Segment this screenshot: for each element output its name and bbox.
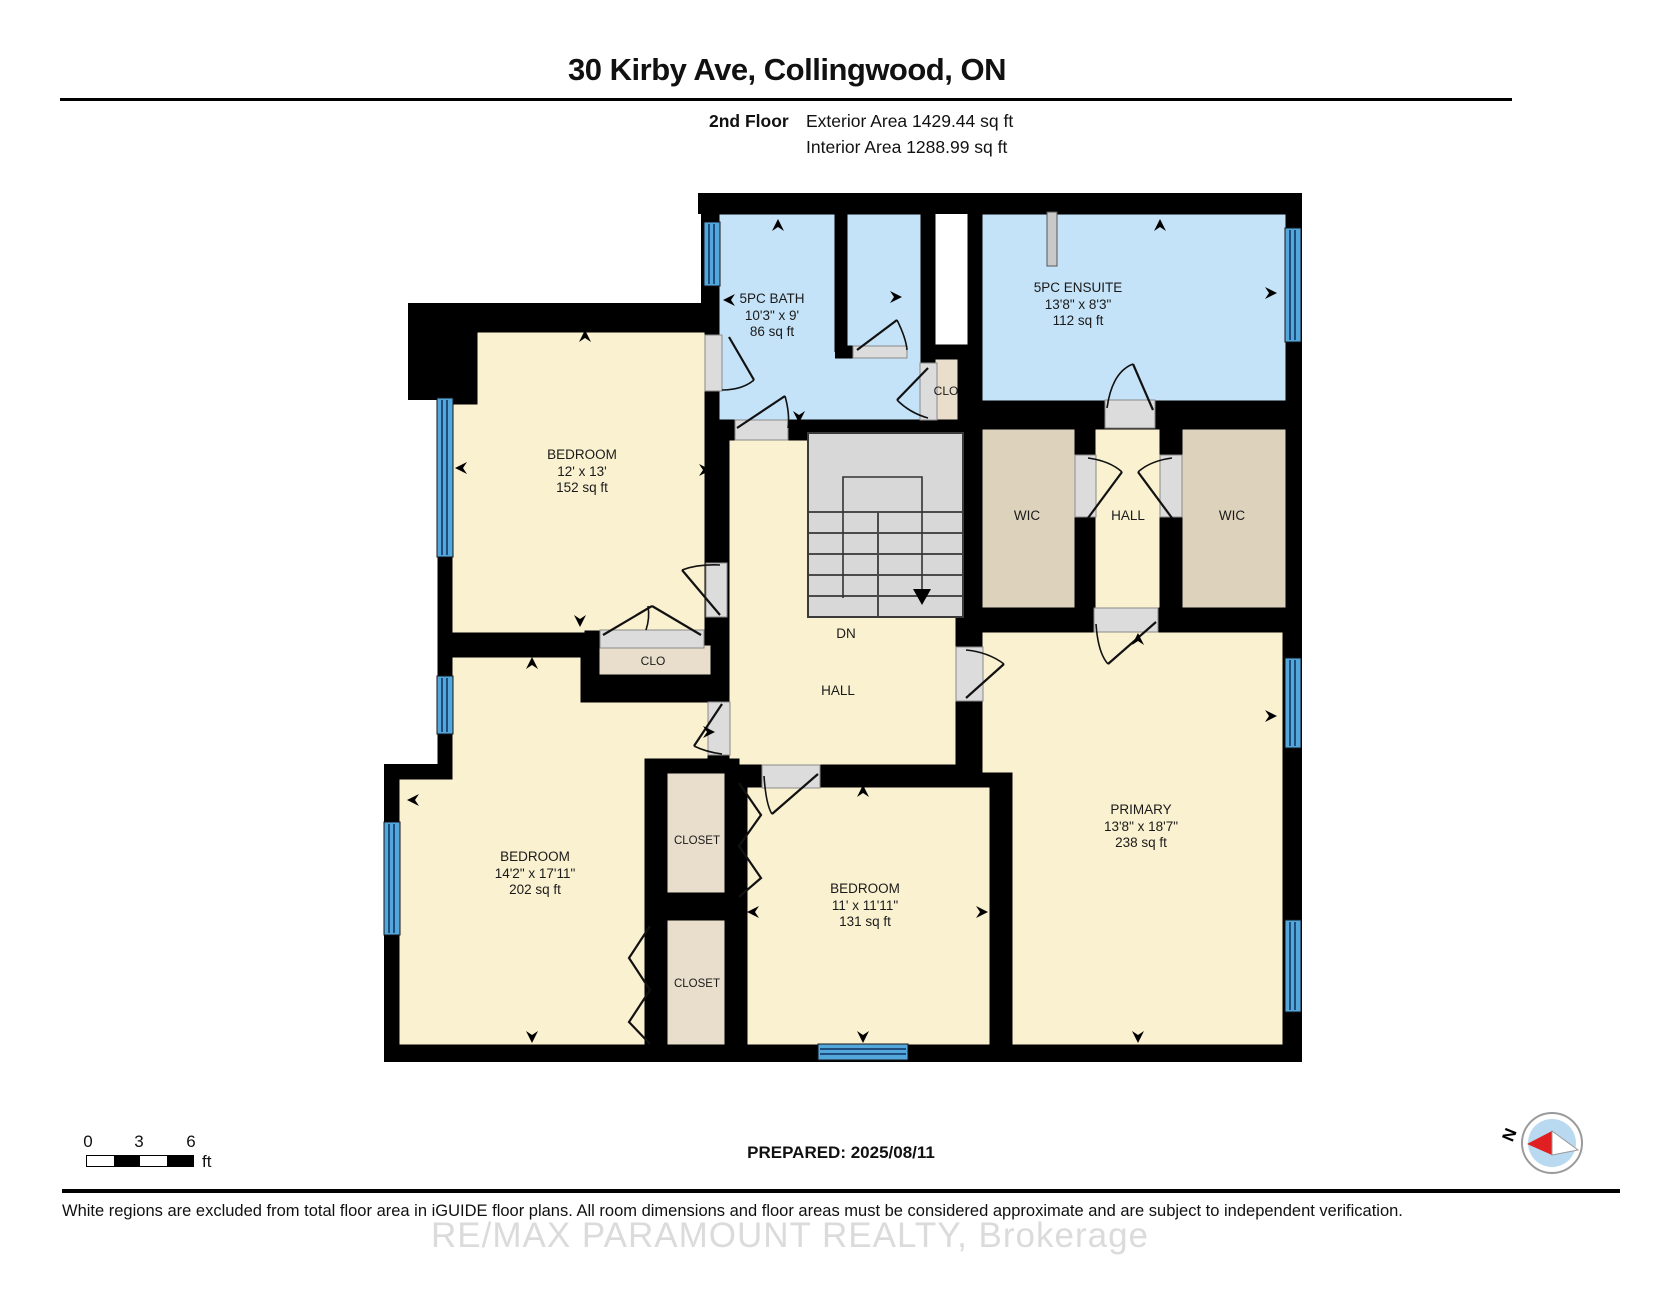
prepared-date: PREPARED: 2025/08/11 [747, 1143, 935, 1163]
bedroom-bm-area: 131 sq ft [839, 914, 891, 929]
bedroom-bl-area: 202 sq ft [509, 882, 561, 897]
clo-bath-label: CLO [934, 384, 959, 398]
stairs-dn-label: DN [836, 626, 856, 641]
footer-divider [62, 1189, 1620, 1193]
primary-area: 238 sq ft [1115, 835, 1167, 850]
wic-left-label: WIC [1014, 508, 1040, 523]
ensuite-area: 112 sq ft [1053, 313, 1104, 328]
window [1285, 658, 1301, 748]
window [437, 676, 453, 734]
bedroom-tl-area: 152 sq ft [556, 480, 608, 495]
wic-right-label: WIC [1219, 508, 1245, 523]
stairs-body [808, 433, 963, 617]
scale-tick-0: 0 [83, 1132, 92, 1152]
bath-dims: 10'3" x 9' [745, 308, 799, 323]
floor-plan-drawing: 5PC BATH 10'3" x 9' 86 sq ft 5PC ENSUITE… [0, 0, 1680, 1299]
staircase [808, 433, 963, 617]
scale-strip [86, 1155, 194, 1167]
bedroom-bm-name: BEDROOM [830, 881, 900, 896]
hall-main-label: HALL [821, 683, 855, 698]
scale-tick-6: 6 [186, 1132, 195, 1152]
room-ensuite [975, 207, 1293, 408]
shower-divider [1047, 212, 1057, 266]
bedroom-tl-dims: 12' x 13' [557, 464, 606, 479]
bedroom-tl-name: BEDROOM [547, 447, 617, 462]
clo-bedroom-label: CLO [641, 654, 666, 668]
bath-name: 5PC BATH [739, 291, 804, 306]
primary-dims: 13'8" x 18'7" [1104, 819, 1178, 834]
scale-tick-3: 3 [134, 1132, 143, 1152]
bath-area: 86 sq ft [750, 324, 795, 339]
primary-name: PRIMARY [1110, 802, 1171, 817]
bedroom-bm-dims: 11' x 11'11" [832, 898, 898, 913]
window [437, 398, 453, 557]
window [704, 222, 720, 286]
bedroom-bl-dims: 14'2" x 17'11" [495, 866, 576, 881]
window [1285, 920, 1301, 1012]
brokerage-watermark: RE/MAX PARAMOUNT REALTY, Brokerage [431, 1216, 1149, 1256]
scale-bar: 0 3 6 ft [84, 1132, 264, 1178]
closet-lower-label: CLOSET [674, 978, 720, 990]
bedroom-bl-name: BEDROOM [500, 849, 570, 864]
scale-unit: ft [202, 1152, 211, 1172]
window [818, 1044, 908, 1060]
wall-corner-block [408, 303, 472, 400]
ensuite-name: 5PC ENSUITE [1034, 280, 1123, 295]
ensuite-dims: 13'8" x 8'3" [1045, 297, 1112, 312]
compass: N [1498, 1113, 1582, 1173]
floor-plan-page: 30 Kirby Ave, Collingwood, ON 2nd Floor … [0, 0, 1680, 1299]
window [384, 822, 400, 935]
window [1285, 228, 1301, 342]
room-closet-upper [660, 766, 732, 900]
closet-upper-label: CLOSET [674, 835, 720, 847]
compass-n-label: N [1498, 1126, 1520, 1145]
hall-upper-label: HALL [1111, 508, 1145, 523]
